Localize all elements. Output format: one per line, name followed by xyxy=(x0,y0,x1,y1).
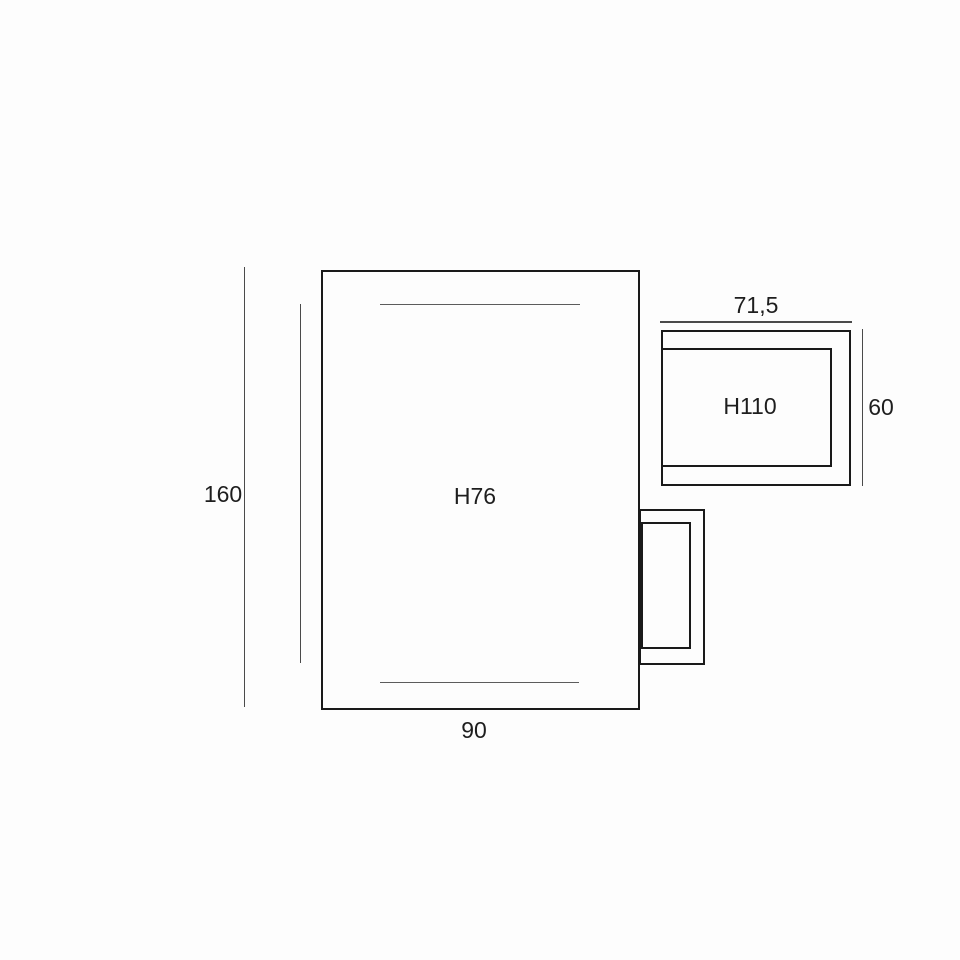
door-bottom-edge-line xyxy=(380,682,579,683)
base-unit-model-label: H76 xyxy=(415,485,535,508)
base-unit-width-dimension-label: 90 xyxy=(414,719,534,742)
wall-unit-model-label: H110 xyxy=(690,395,810,418)
wall-unit-width-dimension-line xyxy=(660,321,852,322)
base-unit-height-dimension-label: 160 xyxy=(193,483,253,506)
wall-unit-height-dimension-label: 60 xyxy=(851,396,911,419)
door-top-edge-line xyxy=(380,304,580,305)
inner-height-reference-line xyxy=(300,304,301,663)
side-panel-inner-outline xyxy=(641,522,691,649)
wall-unit-width-dimension-label: 71,5 xyxy=(716,294,796,317)
dimension-drawing: 160 H76 90 H110 71,5 60 xyxy=(0,0,960,960)
